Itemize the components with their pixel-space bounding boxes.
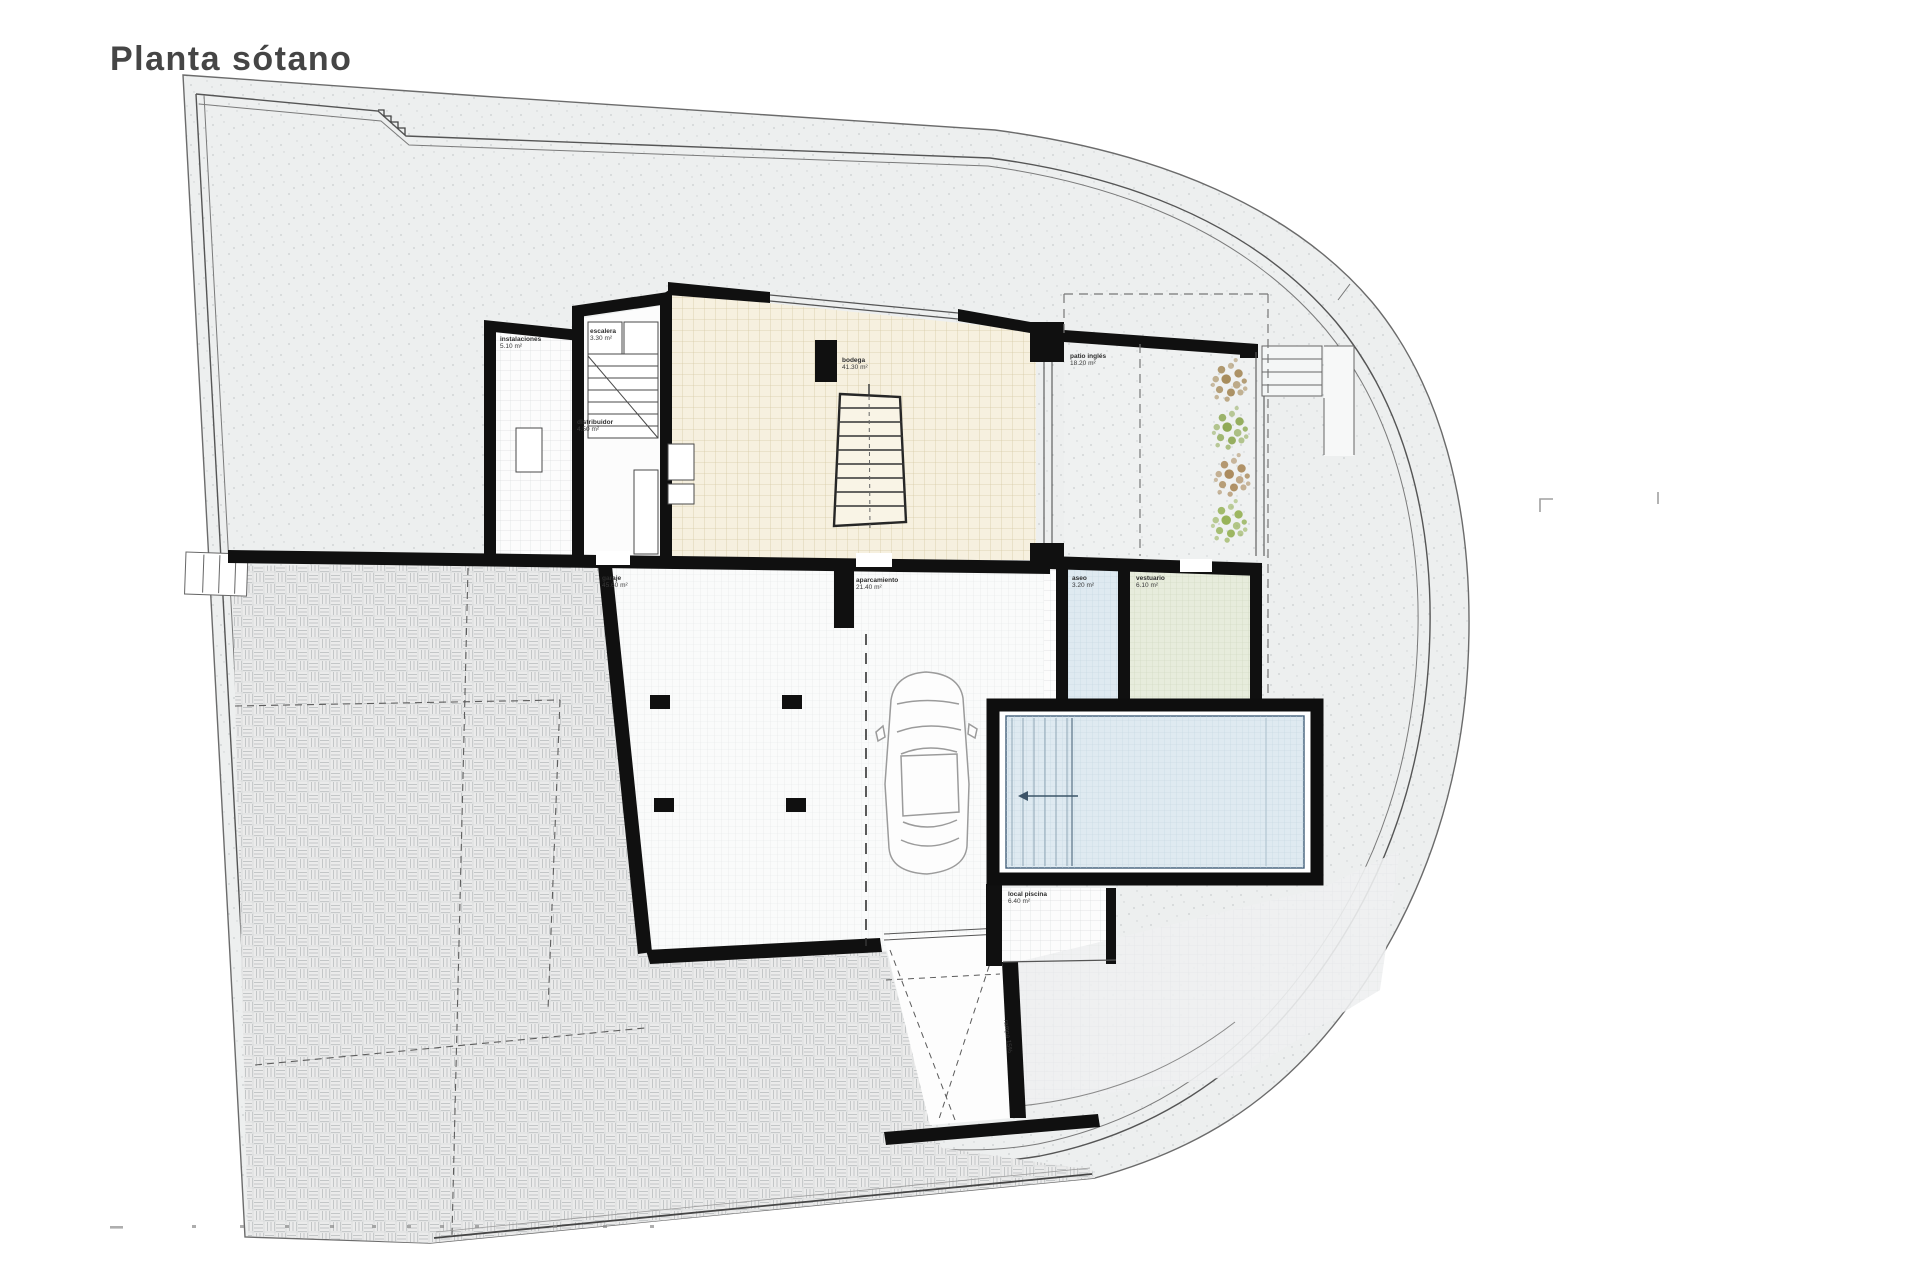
- label-bodega: bodega41.30 m²: [842, 357, 868, 371]
- main-staircase: [834, 384, 906, 530]
- floor-plan-page: rampa 15%: [0, 0, 1920, 1280]
- car: [876, 672, 977, 874]
- pool: [993, 705, 1317, 879]
- page-title: Planta sótano: [110, 40, 352, 78]
- right-reference-marks: [1540, 492, 1658, 512]
- basement-plan-drawing: rampa 15%: [0, 0, 1920, 1280]
